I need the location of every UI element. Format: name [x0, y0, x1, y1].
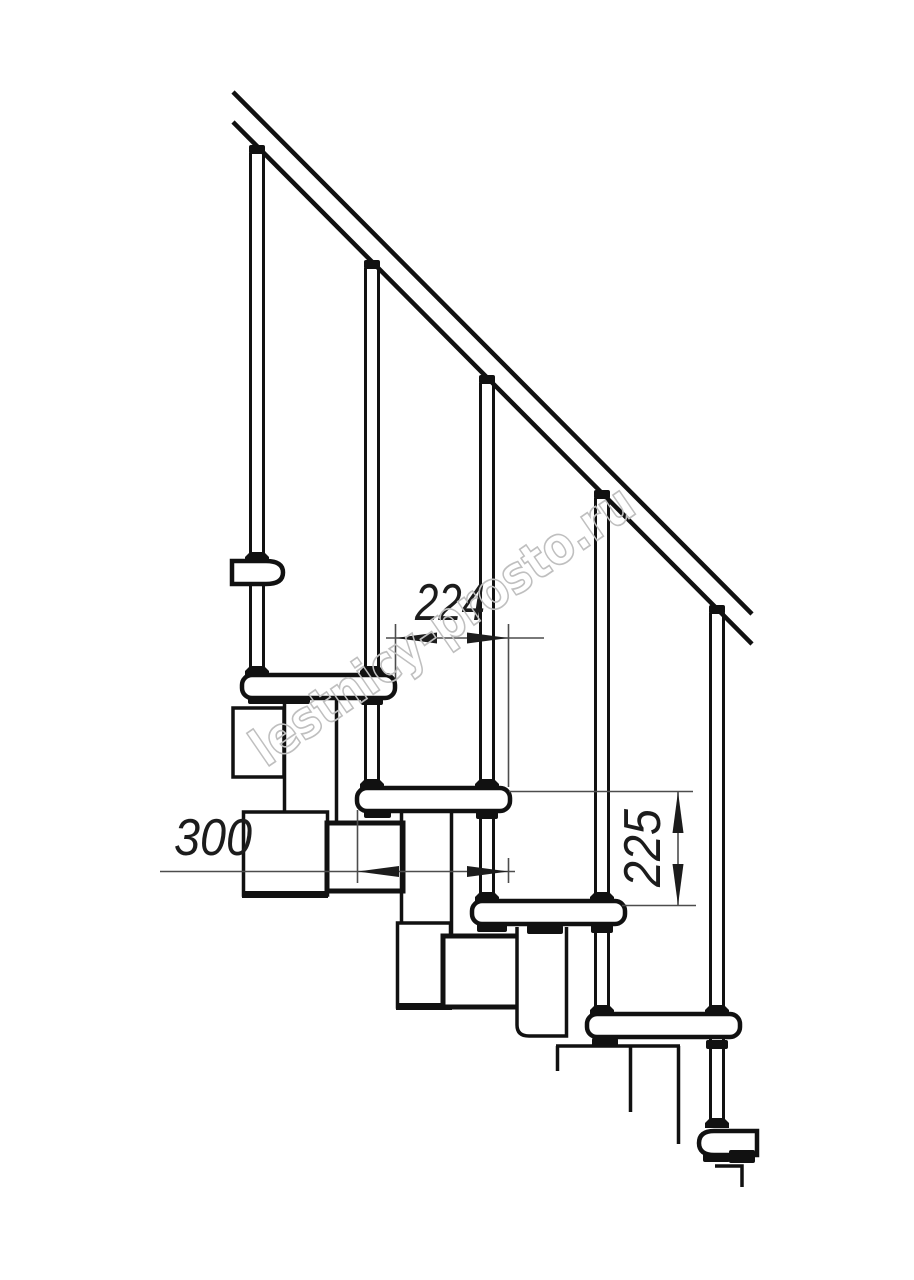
post-joint: [590, 892, 614, 902]
post-cap: [479, 375, 495, 384]
arrow-up-icon: [673, 792, 684, 834]
post-joint: [475, 892, 499, 902]
support-column-3: [517, 927, 567, 1036]
support-edge: [715, 1166, 742, 1187]
tread-plate: [591, 924, 613, 933]
drawing-svg: 224 300 225 lestnicy-prosto.ru: [0, 0, 914, 1280]
tread-3: [472, 901, 625, 924]
arrow-down-icon: [673, 864, 684, 906]
tread-0: [232, 561, 283, 584]
post-joint: [705, 1118, 729, 1128]
post-cap: [364, 260, 380, 269]
post-joint: [245, 552, 269, 562]
post-cap: [709, 605, 725, 614]
connector-module: [327, 823, 403, 891]
staircase-technical-drawing: 224 300 225 lestnicy-prosto.ru: [0, 0, 914, 1280]
connector-module: [443, 936, 518, 1007]
tread-plate: [476, 810, 498, 819]
tread-plate: [729, 1150, 755, 1163]
tread-plate: [706, 1040, 728, 1049]
watermark: lestnicy-prosto.ru: [239, 473, 645, 778]
arrow-right-icon: [467, 866, 509, 877]
post-joint: [360, 779, 384, 789]
post-cap: [249, 145, 265, 154]
tread-plate: [703, 1153, 730, 1162]
tread-plate: [527, 925, 563, 934]
post-joint: [590, 1005, 614, 1015]
support-box: [244, 812, 328, 895]
baluster-1: [251, 153, 264, 667]
post-joint: [475, 779, 499, 789]
support-chain: [233, 700, 742, 1187]
tread-plate: [364, 809, 391, 818]
post-joint: [705, 1005, 729, 1015]
tread-4: [587, 1014, 740, 1037]
dimension-value-depth: 300: [174, 809, 252, 867]
fittings: [245, 145, 755, 1163]
post-joint: [245, 666, 269, 676]
tread-2: [357, 788, 510, 811]
tread-plate: [592, 1038, 618, 1047]
tread-plate: [477, 923, 507, 932]
dimension-value-rise: 225: [614, 808, 672, 888]
